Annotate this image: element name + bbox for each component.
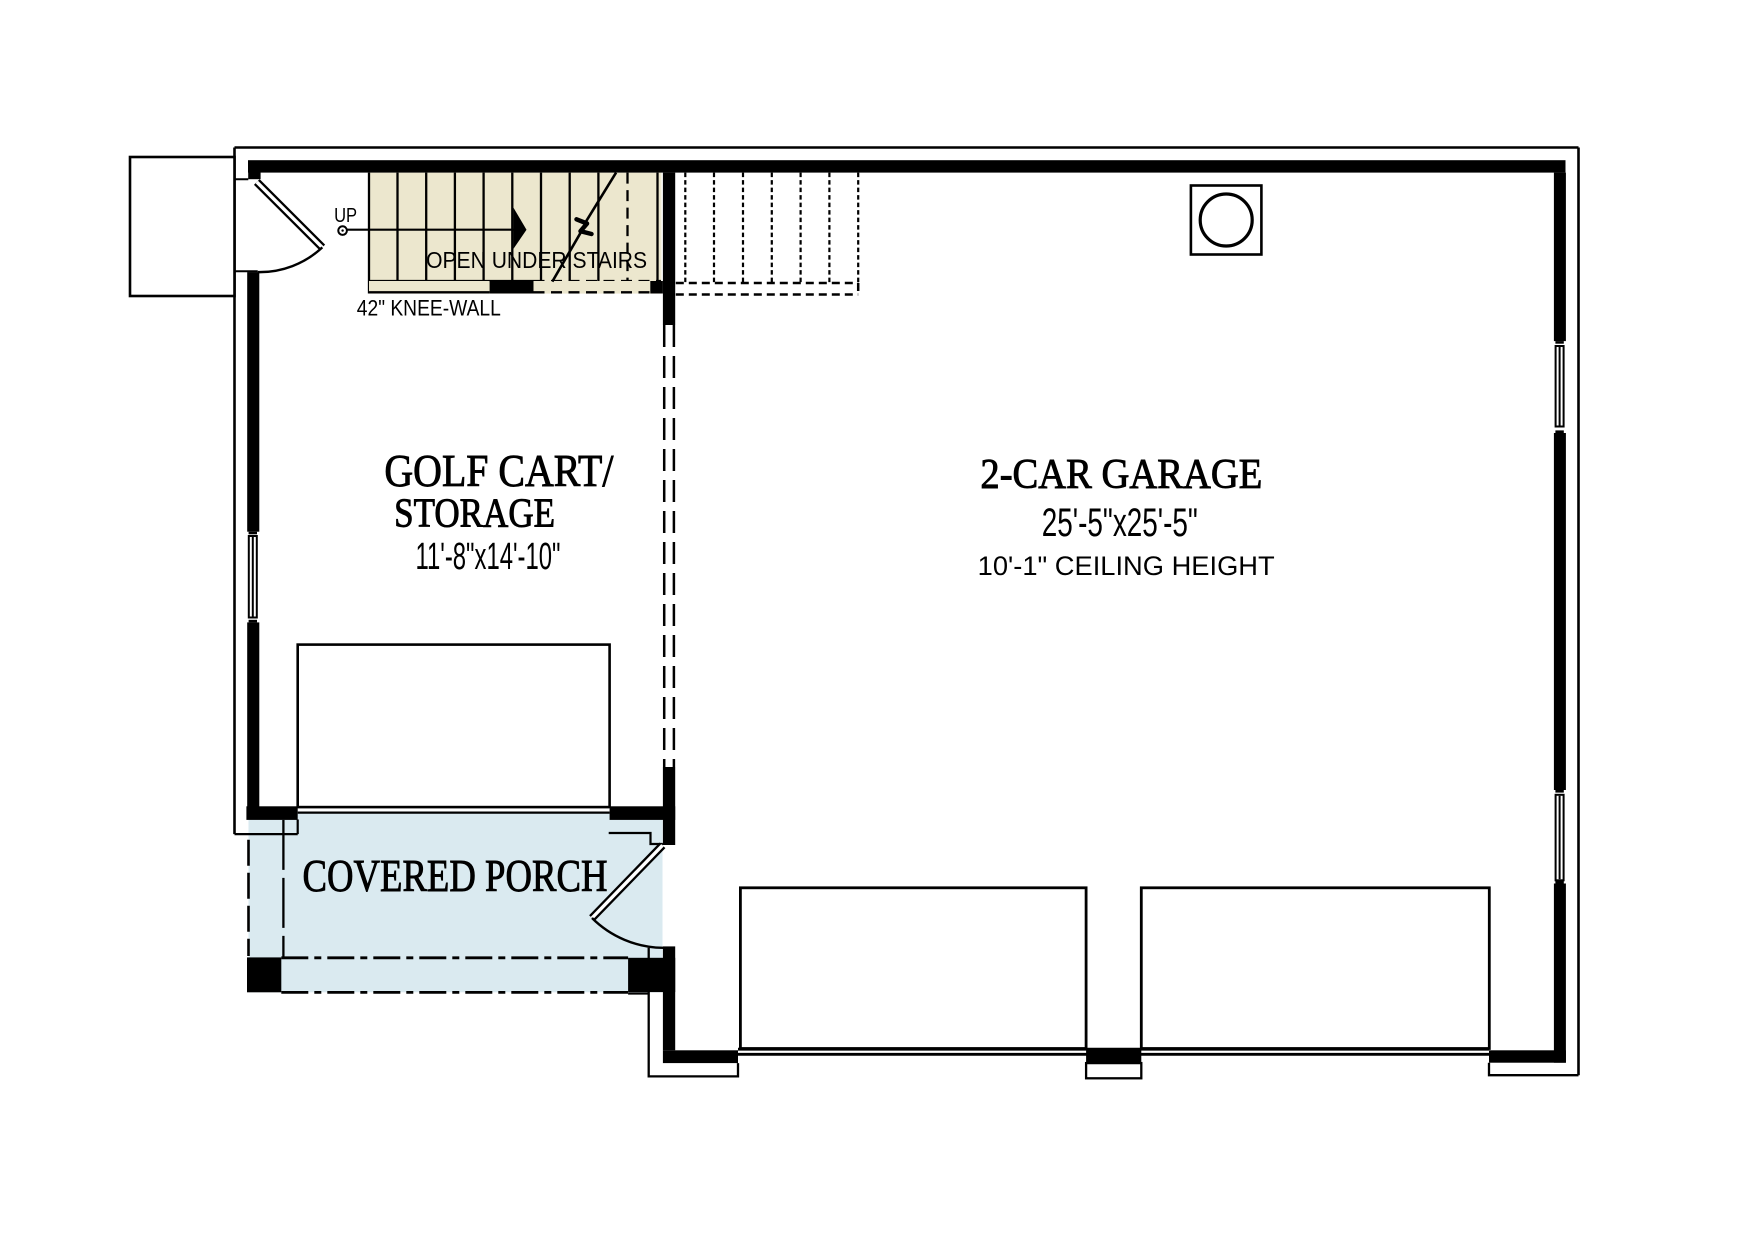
- svg-text:10'-1" CEILING HEIGHT: 10'-1" CEILING HEIGHT: [978, 551, 1275, 581]
- svg-text:COVERED PORCH: COVERED PORCH: [303, 851, 608, 901]
- svg-text:11'-8"x14'-10": 11'-8"x14'-10": [416, 536, 561, 578]
- svg-text:2-CAR GARAGE: 2-CAR GARAGE: [980, 452, 1262, 498]
- svg-text:STORAGE: STORAGE: [394, 490, 555, 536]
- svg-text:UP: UP: [334, 205, 357, 227]
- svg-text:OPEN UNDER STAIRS: OPEN UNDER STAIRS: [426, 247, 647, 273]
- svg-text:25'-5"x25'-5": 25'-5"x25'-5": [1042, 501, 1198, 545]
- svg-text:GOLF CART/: GOLF CART/: [384, 446, 613, 496]
- svg-text:42" KNEE-WALL: 42" KNEE-WALL: [357, 296, 501, 321]
